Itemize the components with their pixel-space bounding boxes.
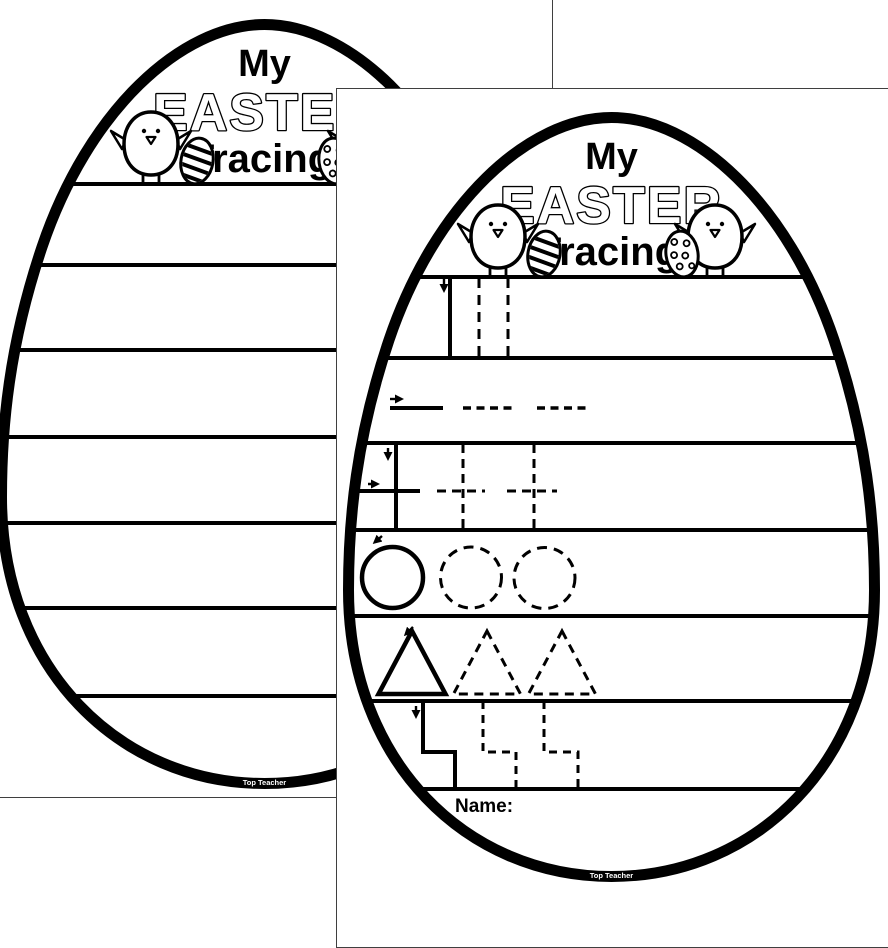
dashed-step <box>483 701 516 790</box>
chick-eye <box>706 222 710 226</box>
dashed-circle <box>441 547 502 608</box>
dashed-cross-verticals <box>463 444 534 530</box>
worksheet-preview-canvas: { "worksheet": { "title_top": "My", "tit… <box>0 0 888 888</box>
dashed-triangle <box>529 631 596 694</box>
tracing-row-triangles <box>379 627 596 694</box>
dashed-triangle <box>454 631 521 694</box>
name-label: Name: <box>455 796 513 817</box>
chick-eye <box>156 129 160 133</box>
dashed-vertical-lines <box>479 278 508 358</box>
front-brand-label: Top Teacher <box>590 871 634 880</box>
tracing-row-circles <box>362 536 575 609</box>
chick-eye <box>489 222 493 226</box>
solid-triangle <box>379 631 446 694</box>
back-title-my: My <box>238 43 291 85</box>
dashed-circle <box>514 548 575 609</box>
tracing-row-vertical-lines <box>444 277 508 358</box>
tracing-row-horizontal-lines <box>390 399 587 408</box>
tracing-row-crosses <box>356 443 557 530</box>
dashed-step <box>544 701 578 790</box>
solid-step <box>423 701 455 790</box>
front-title-my: My <box>585 136 638 178</box>
front-page: My EASTER Tracing <box>336 88 888 948</box>
back-brand-label: Top Teacher <box>243 778 287 787</box>
solid-circle <box>362 547 423 608</box>
chick-eye <box>142 129 146 133</box>
front-egg-worksheet: My EASTER Tracing <box>343 112 880 882</box>
tracing-row-steps <box>416 701 578 790</box>
chick-eye <box>720 222 724 226</box>
curve-arrow-icon <box>375 536 382 542</box>
chick-eye <box>503 222 507 226</box>
front-egg-interior: My EASTER Tracing <box>343 136 880 817</box>
